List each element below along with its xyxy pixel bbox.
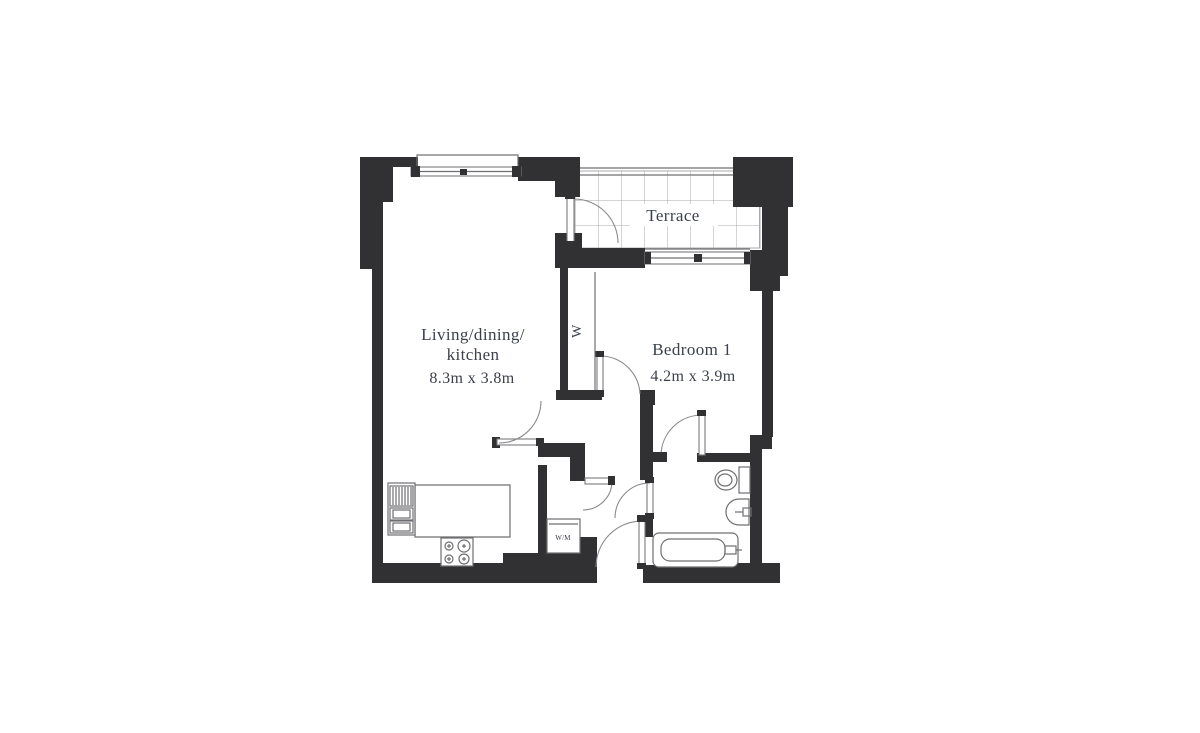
washing-machine: W/M <box>547 519 580 553</box>
wardrobe-label: W <box>570 324 585 338</box>
window-mullion <box>411 166 420 177</box>
door-swing-arc <box>661 415 702 455</box>
bathtub <box>653 533 742 567</box>
door-swing-arc <box>596 521 642 567</box>
living-room-dimensions: 8.3m x 3.8m <box>429 370 514 387</box>
living-room-door <box>497 401 544 446</box>
living-room-label-line2: kitchen <box>447 345 500 364</box>
window-mullion <box>460 169 467 175</box>
wall-segment <box>503 553 528 583</box>
door-hinge-cap <box>637 563 646 569</box>
bathroom-door-from-hall <box>615 477 654 519</box>
door-swing-arc <box>499 401 541 443</box>
bathroom <box>653 467 751 567</box>
door-leaf <box>497 439 541 445</box>
toilet-cistern <box>739 467 750 493</box>
window-mullion <box>694 254 702 262</box>
wall-segment <box>372 563 503 583</box>
window-mullion <box>512 166 521 177</box>
wall-segment <box>558 248 645 268</box>
wall-segment <box>750 435 772 449</box>
living-room-label-line1: Living/dining/ <box>421 325 525 344</box>
washing-machine-label: W/M <box>555 534 571 542</box>
door-swing-arc <box>615 483 650 518</box>
door-swing-arc <box>600 356 640 394</box>
sink-drainer-grooves <box>393 487 411 505</box>
wardrobe: W <box>570 272 595 390</box>
wall-segment <box>570 455 585 481</box>
kitchen <box>388 483 510 566</box>
door-leaf <box>647 482 653 517</box>
door-leaf <box>639 520 645 567</box>
kitchen-counter-outline <box>415 485 510 537</box>
wall-segment <box>580 537 597 554</box>
door-hinge-cap <box>637 515 646 522</box>
bedroom-door <box>595 351 640 397</box>
wall-segment <box>555 157 580 197</box>
door-hinge-cap <box>645 513 654 519</box>
wall-segment <box>538 465 547 565</box>
kitchen-hob <box>441 538 473 566</box>
hall-cupboard-door <box>583 476 615 510</box>
floor-plan-page: Terrace <box>0 0 1200 733</box>
door-leaf <box>597 355 603 394</box>
wall-segment <box>733 157 793 207</box>
door-hinge-cap <box>565 241 575 247</box>
entrance-door <box>596 515 646 569</box>
door-hinge-cap <box>595 351 604 357</box>
door-hinge-cap <box>697 410 706 416</box>
door-hinge-cap <box>608 476 615 485</box>
door-hinge-cap <box>565 193 575 199</box>
door-leaf <box>567 197 574 243</box>
bedroom-label: Bedroom 1 <box>652 340 732 359</box>
window-mullion <box>645 252 651 264</box>
door-hinge-cap <box>645 477 654 483</box>
kitchen-sink-unit <box>388 483 415 535</box>
wall-segment <box>538 443 585 457</box>
terrace: Terrace <box>575 168 760 248</box>
terrace-label: Terrace <box>646 206 700 225</box>
door-leaf <box>585 478 612 484</box>
window-mullion <box>744 252 750 264</box>
wall-segment <box>360 157 383 269</box>
wall-segment <box>762 275 773 437</box>
wall-segment <box>372 269 383 565</box>
toilet <box>715 467 750 493</box>
bedroom-window <box>645 249 750 264</box>
door-hinge-cap <box>595 390 604 397</box>
door-leaf <box>699 414 705 455</box>
door-hinge-cap <box>657 452 664 462</box>
wall-segment <box>762 205 788 276</box>
door-swing-arc <box>583 481 612 510</box>
wall-segment <box>750 250 764 268</box>
basin <box>726 499 751 525</box>
window-sill <box>417 155 518 168</box>
bedroom-dimensions: 4.2m x 3.9m <box>650 368 735 385</box>
living-room-window <box>411 155 521 177</box>
wall-segment <box>750 447 762 569</box>
wall-segment <box>383 175 393 202</box>
floor-plan-drawing: Terrace <box>0 0 1200 733</box>
wall-segment <box>640 395 653 480</box>
wall-segment <box>560 268 568 394</box>
door-hinge-cap <box>536 438 544 446</box>
